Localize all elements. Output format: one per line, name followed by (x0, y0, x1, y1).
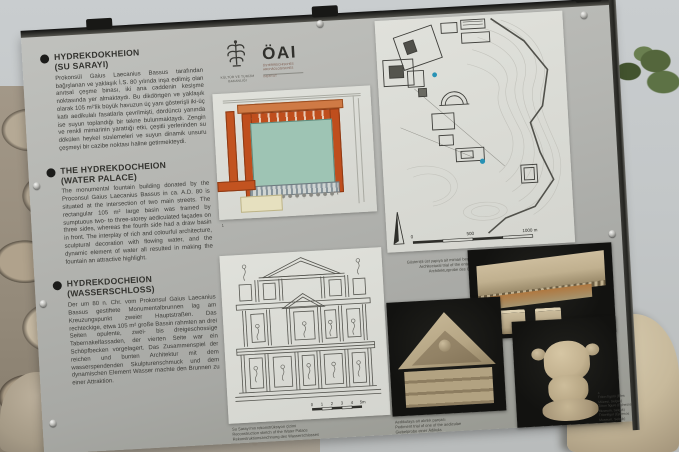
bolt (33, 182, 40, 189)
information-panel: HYDREKDOKHEION (SU SARAYI) Prokonsül Gai… (21, 2, 636, 452)
map-marker-blue (432, 72, 437, 77)
section-subtitle-de: (WASSERSCHLOSS) (67, 285, 155, 300)
section-body-tr: Prokonsül Gaius Laecanius Bassus tarafın… (55, 67, 207, 153)
map-scale-0: 0 (410, 234, 413, 239)
facade-scale-2: 2 (331, 401, 334, 406)
facade-scale-1: 1 (321, 402, 324, 407)
section-bullet-icon (53, 281, 62, 290)
ministry-logo-caption: KÜLTÜR VE TURİZM BAKANLIĞI (217, 74, 257, 84)
north-arrow-icon (392, 212, 404, 245)
plan-excavation-area (240, 195, 283, 213)
facade-line-drawing: 0 1 2 3 4 5m (219, 247, 390, 424)
ground-plan-figure (212, 85, 377, 220)
facade-drawing-figure: 0 1 2 3 4 5m (219, 247, 390, 424)
tree-of-life-icon (222, 38, 250, 69)
facade-caption: Su Sarayı'nın rekonstrüksiyon çizimi Rec… (232, 422, 319, 442)
section-german: HYDREKDOCHEION (WASSERSCHLOSS) Der um 80… (53, 272, 221, 389)
bolt (316, 20, 323, 27)
bolt (580, 11, 587, 18)
bolt (609, 230, 616, 237)
torso-caption-de: Tritonfigur (Ephesos Museum, Selçuk) (599, 411, 635, 422)
plan-street-portico (217, 180, 255, 192)
site-map-figure: 0 500 1000 m (375, 11, 576, 253)
section-body-de: Der um 80 n. Chr. vom Prokonsul Gaius La… (68, 295, 221, 389)
bolt (49, 419, 56, 426)
section-turkish: HYDREKDOKHEION (SU SARAYI) Prokonsül Gai… (40, 45, 207, 155)
triton-coil (542, 397, 599, 422)
plan-caption: 1 (222, 223, 225, 228)
ministry-logo: KÜLTÜR VE TURİZM BAKANLIĞI (215, 38, 257, 84)
oai-wordmark: ÖAI (262, 43, 309, 63)
pediment-caption: Aedikulaya ait alınlık parçası Pediment … (395, 413, 506, 434)
pediment-photo (386, 297, 506, 417)
text-column: HYDREKDOKHEION (SU SARAYI) Prokonsül Gai… (40, 45, 221, 402)
map-scale-500: 500 (466, 231, 474, 236)
facade-scale-4: 4 (351, 400, 354, 405)
section-english: THE HYDREKDOCHEION (WATER PALACE) The mo… (46, 158, 213, 268)
section-body-en: The monumental fountain building donated… (61, 181, 213, 267)
oai-logo: ÖAI ÖSTERREICHISCHES ARCHÄOLOGISCHES INS… (262, 43, 310, 79)
mount-clamp (86, 18, 113, 30)
facade-scale-3: 3 (341, 400, 344, 405)
plan-street-portico (225, 111, 238, 185)
mount-clamp (312, 5, 339, 17)
pediment-base-blocks (404, 367, 494, 408)
map-scale-1000: 1000 m (522, 227, 538, 233)
section-bullet-icon (40, 54, 49, 63)
oai-subtext-3: INSTITUT (263, 72, 309, 78)
site-map-drawing: 0 500 1000 m (375, 11, 576, 253)
section-bullet-icon (46, 168, 55, 177)
bolt (40, 300, 47, 307)
torso-caption: 4 Triton figürü (Efes Müzesi, Selçuk) Tr… (598, 389, 636, 422)
site-photo-scene: HYDREKDOKHEION (SU SARAYI) Prokonsül Gai… (0, 0, 679, 452)
facade-scale-5: 5m (360, 399, 367, 404)
facade-scale-0: 0 (311, 402, 314, 407)
section-subtitle-tr: (SU SARAYI) (54, 58, 140, 73)
plan-water-basin (250, 119, 336, 188)
